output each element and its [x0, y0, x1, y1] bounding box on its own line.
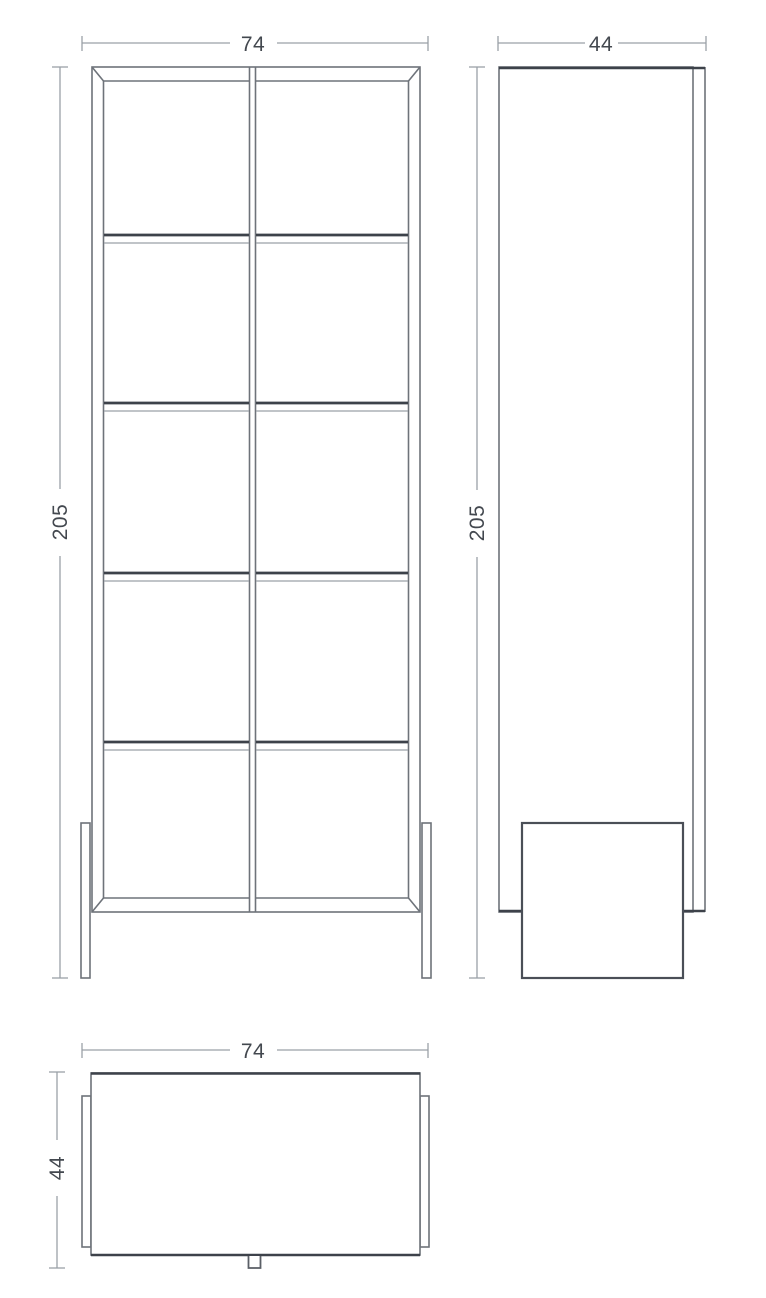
top-center-tab [249, 1256, 261, 1268]
front-right-leg [422, 823, 431, 978]
top-body [91, 1073, 420, 1255]
dim-top-width: 74 [82, 1040, 428, 1063]
dim-label-top-depth: 44 [46, 1156, 69, 1180]
dim-label-side-depth: 44 [589, 33, 613, 56]
front-view: 74 205 [49, 33, 431, 978]
dim-front-width: 74 [82, 33, 428, 56]
dim-label-top-width: 74 [241, 1040, 265, 1063]
dim-label-front-height: 205 [49, 504, 72, 541]
technical-drawing-canvas: 74 205 44 [0, 0, 766, 1298]
dim-top-depth: 44 [46, 1072, 69, 1268]
side-view: 44 205 [466, 33, 706, 978]
top-view: 74 44 [46, 1040, 429, 1268]
dim-front-height: 205 [49, 67, 72, 978]
top-left-leg-strip [82, 1096, 91, 1247]
front-left-leg [81, 823, 90, 978]
dim-label-front-width: 74 [241, 33, 265, 56]
dim-side-height: 205 [466, 67, 489, 978]
dim-side-depth: 44 [498, 33, 706, 56]
cabinet-technical-drawing: 74 205 44 [0, 0, 766, 1298]
side-leg-block [522, 823, 683, 978]
top-right-leg-strip [420, 1096, 429, 1247]
dim-label-side-height: 205 [466, 505, 489, 542]
side-body [499, 67, 693, 912]
